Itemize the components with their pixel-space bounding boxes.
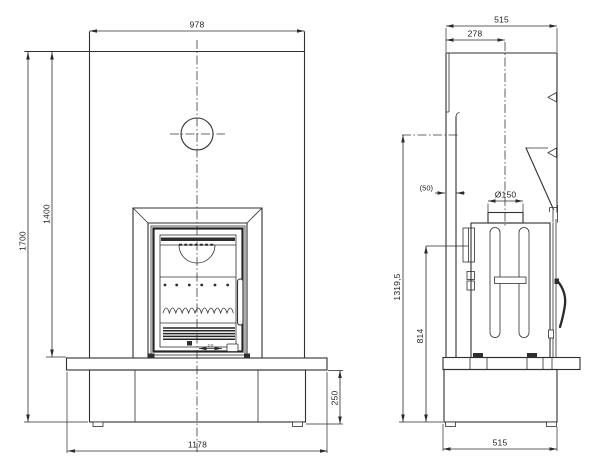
door-ash-lip xyxy=(227,344,238,352)
dim-label-front-width: 978 xyxy=(190,20,205,30)
dim-label-rear-gap: (50) xyxy=(420,184,434,193)
side-view: 515 278 (50) 1319,5 814 Ø150 515 xyxy=(392,15,580,452)
air-arrow-icon xyxy=(548,93,557,103)
dim-label-front-height-bench: 1400 xyxy=(42,204,52,224)
dim-label-side-depth-base: 515 xyxy=(493,438,508,448)
side-stove-body xyxy=(463,219,565,358)
dim-label-front-height-total: 1700 xyxy=(18,231,28,251)
side-bench xyxy=(443,358,580,427)
side-shell-outline xyxy=(446,53,557,358)
door-vent-grille xyxy=(163,328,235,339)
front-flue-knockout xyxy=(170,118,225,150)
front-stove-door: 2-0 xyxy=(149,226,251,358)
door-wave-pattern xyxy=(163,308,233,313)
dim-label-side-depth-top: 515 xyxy=(494,15,509,25)
air-arrow-icon xyxy=(548,148,557,158)
dim-label-door-micro: 2-0 xyxy=(208,343,215,348)
door-dot-row xyxy=(164,284,230,287)
side-door-handle xyxy=(549,279,566,339)
dim-label-flue-center: 278 xyxy=(468,29,483,39)
door-pivot-mark xyxy=(187,341,192,346)
dim-label-plinth-height: 250 xyxy=(330,391,340,406)
door-air-band xyxy=(161,238,235,242)
door-handle xyxy=(238,279,244,325)
dim-label-height-connection: 1319,5 xyxy=(392,273,402,300)
dim-label-flue-diameter: Ø150 xyxy=(495,190,517,200)
side-airflow-arrows xyxy=(526,93,558,223)
dim-label-height-rear-outlet: 814 xyxy=(415,329,425,344)
front-view: 2-0 978 1700 1400 xyxy=(18,20,344,454)
dim-label-hearth-width: 1178 xyxy=(188,440,207,450)
side-crossbar xyxy=(495,277,527,284)
fireplace-dimension-drawing: 2-0 978 1700 1400 xyxy=(0,0,600,474)
technical-drawing-page: 2-0 978 1700 1400 xyxy=(0,0,600,474)
side-flue-collar xyxy=(488,213,523,224)
front-dimensions: 978 1700 1400 1178 250 xyxy=(18,20,344,454)
